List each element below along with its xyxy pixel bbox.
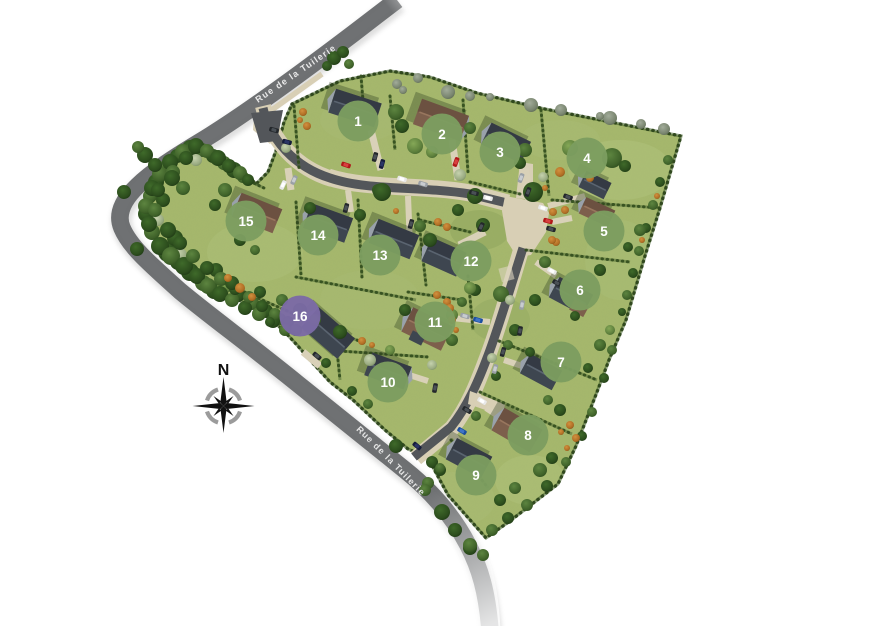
svg-text:10: 10 (380, 375, 395, 390)
svg-text:1: 1 (354, 114, 362, 129)
svg-text:12: 12 (463, 254, 478, 269)
svg-text:5: 5 (600, 224, 608, 239)
svg-text:14: 14 (310, 228, 326, 243)
svg-text:13: 13 (372, 248, 388, 263)
svg-text:15: 15 (238, 214, 254, 229)
svg-text:2: 2 (438, 127, 446, 142)
svg-text:9: 9 (472, 468, 480, 483)
svg-text:7: 7 (557, 355, 565, 370)
svg-text:11: 11 (428, 315, 443, 330)
svg-text:6: 6 (576, 283, 584, 298)
svg-text:8: 8 (524, 428, 532, 443)
svg-text:N: N (218, 362, 230, 379)
svg-text:4: 4 (583, 151, 591, 166)
svg-text:16: 16 (292, 309, 308, 324)
svg-text:3: 3 (496, 145, 504, 160)
